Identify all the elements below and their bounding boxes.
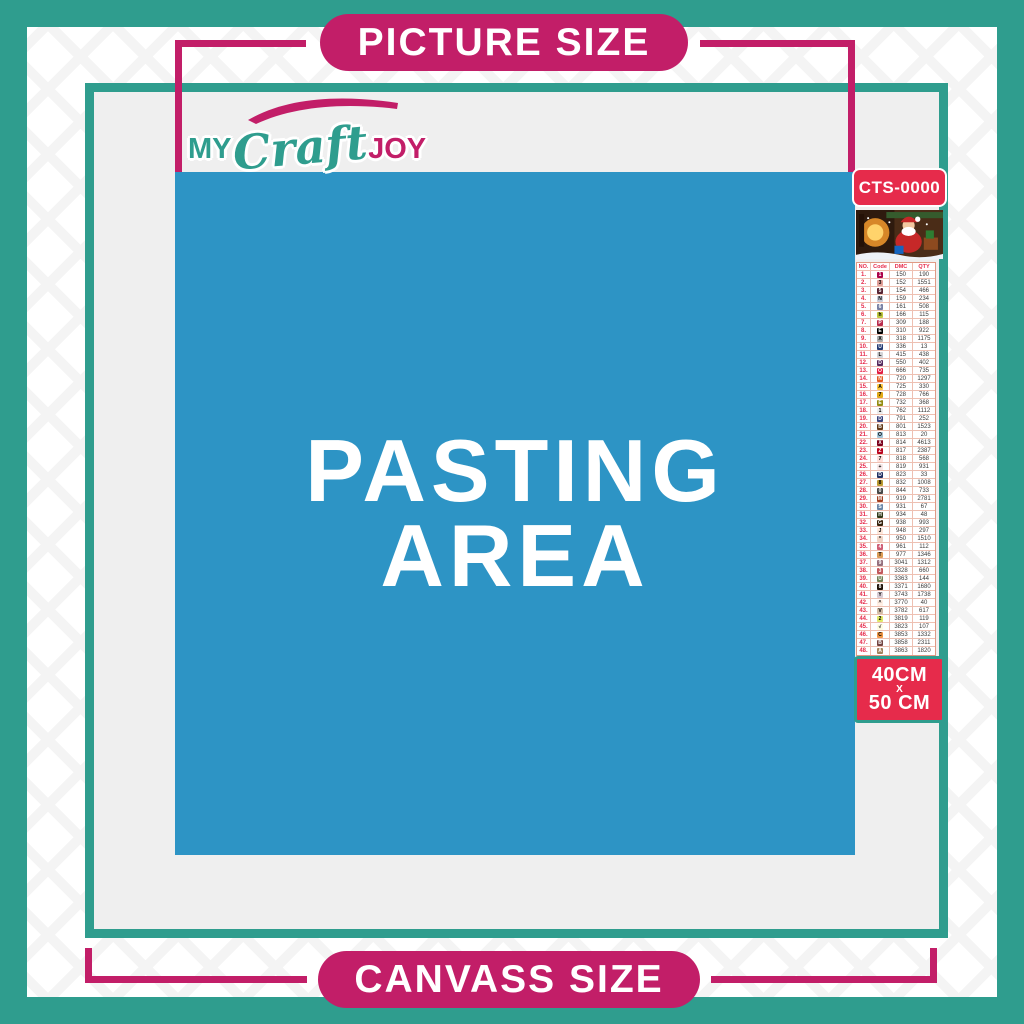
legend-dmc-cell: 938 (890, 519, 913, 526)
legend-dmc-cell: 3863 (890, 647, 913, 655)
table-row: 39.U3363144 (857, 575, 935, 583)
table-row: 21.O81320 (857, 431, 935, 439)
legend-dmc-cell: 3328 (890, 567, 913, 574)
table-row: 26.D82333 (857, 471, 935, 479)
legend-no-cell: 17. (857, 399, 871, 406)
legend-no-cell: 22. (857, 439, 871, 446)
table-row: 34.*9501510 (857, 535, 935, 543)
legend-no-cell: 36. (857, 551, 871, 558)
table-row: 31.H93448 (857, 511, 935, 519)
canvass-size-banner: CANVASS SIZE (318, 951, 700, 1008)
legend-no-cell: 40. (857, 583, 871, 590)
legend-code-cell: Y (871, 591, 890, 598)
legend-code-cell: 0 (871, 487, 890, 494)
table-row: 42.^377040 (857, 599, 935, 607)
table-row: 45.√3823107 (857, 623, 935, 631)
legend-qty-cell: 660 (913, 567, 935, 574)
legend-no-cell: 32. (857, 519, 871, 526)
table-row: 14.N7201297 (857, 375, 935, 383)
color-swatch: U (877, 576, 883, 582)
legend-dmc-cell: 159 (890, 295, 913, 302)
pasting-area-line2: AREA (380, 514, 649, 598)
table-row: 28.0844733 (857, 487, 935, 495)
color-swatch: 1 (877, 272, 883, 278)
legend-no-cell: 45. (857, 623, 871, 630)
table-row: 1.1150190 (857, 271, 935, 279)
legend-no-cell: 2. (857, 279, 871, 286)
legend-code-cell: 7 (871, 455, 890, 462)
legend-no-cell: 12. (857, 359, 871, 366)
color-swatch: C (877, 632, 883, 638)
legend-dmc-cell: 3363 (890, 575, 913, 582)
legend-code-cell: X (871, 335, 890, 342)
legend-no-cell: 18. (857, 407, 871, 414)
legend-code-cell: L (871, 351, 890, 358)
legend-code-cell: U (871, 343, 890, 350)
legend-qty-cell: 931 (913, 463, 935, 470)
top-bracket-line-left (175, 40, 306, 47)
legend-dmc-cell: 309 (890, 319, 913, 326)
legend-qty-cell: 922 (913, 327, 935, 334)
table-row: 43.V3782617 (857, 607, 935, 615)
legend-qty-cell: 20 (913, 431, 935, 438)
legend-no-cell: 37. (857, 559, 871, 566)
table-row: 25.+819931 (857, 463, 935, 471)
picture-size-label: PICTURE SIZE (358, 21, 651, 65)
legend-no-cell: 11. (857, 351, 871, 358)
color-swatch: Y (877, 592, 883, 598)
legend-no-cell: 20. (857, 423, 871, 430)
legend-no-cell: 33. (857, 527, 871, 534)
legend-no-cell: 14. (857, 375, 871, 382)
legend-qty-cell: 2387 (913, 447, 935, 454)
top-bracket-stub-left (175, 40, 182, 172)
table-row: 12.D550402 (857, 359, 935, 367)
color-swatch: Z (877, 448, 883, 454)
color-swatch: 8 (877, 480, 883, 486)
table-row: 48.A38631820 (857, 647, 935, 655)
color-swatch: L (877, 352, 883, 358)
legend-dmc-cell: 823 (890, 471, 913, 478)
legend-code-cell: B (871, 639, 890, 646)
legend-code-cell: E (871, 327, 890, 334)
legend-dmc-cell: 832 (890, 479, 913, 486)
color-swatch: D (877, 472, 883, 478)
legend-code-cell: D (871, 359, 890, 366)
color-swatch: 6 (877, 304, 883, 310)
logo-text-craft: Craft (231, 122, 369, 176)
legend-no-cell: 5. (857, 303, 871, 310)
brand-logo: MY Craft JOY (188, 98, 413, 172)
color-swatch: 9 (877, 560, 883, 566)
legend-dmc-cell: 318 (890, 335, 913, 342)
size-width: 40CM (872, 666, 927, 685)
color-swatch: T (877, 552, 883, 558)
color-swatch: 5 (877, 288, 883, 294)
legend-qty-cell: 252 (913, 415, 935, 422)
legend-dmc-cell: 3858 (890, 639, 913, 646)
legend-qty-cell: 13 (913, 343, 935, 350)
canvas-size-badge: 40CM X 50 CM (854, 656, 945, 723)
legend-code-cell: B (871, 423, 890, 430)
legend-code-cell: * (871, 535, 890, 542)
legend-dmc-cell: 336 (890, 343, 913, 350)
color-swatch: 8 (877, 584, 883, 590)
legend-dmc-cell: 817 (890, 447, 913, 454)
legend-qty-cell: 438 (913, 351, 935, 358)
legend-no-cell: 6. (857, 311, 871, 318)
color-swatch: E (877, 400, 883, 406)
color-swatch: B (877, 640, 883, 646)
color-swatch: P (877, 320, 883, 326)
legend-no-cell: 44. (857, 615, 871, 622)
legend-qty-cell: 1523 (913, 423, 935, 430)
legend-no-cell: 15. (857, 383, 871, 390)
logo-swoosh-icon (246, 94, 406, 124)
legend-no-cell: 29. (857, 495, 871, 502)
table-row: 36.T9771346 (857, 551, 935, 559)
legend-qty-cell: 568 (913, 455, 935, 462)
legend-dmc-cell: 3823 (890, 623, 913, 630)
legend-dmc-cell: 818 (890, 455, 913, 462)
legend-no-cell: 39. (857, 575, 871, 582)
table-row: 23.Z8172387 (857, 447, 935, 455)
legend-no-cell: 3. (857, 287, 871, 294)
color-swatch: H (877, 512, 883, 518)
legend-code-cell: X (871, 439, 890, 446)
table-row: 37.930411312 (857, 559, 935, 567)
table-row: 47.B38582311 (857, 639, 935, 647)
table-row: 17.E732368 (857, 399, 935, 407)
table-row: 32.G938993 (857, 519, 935, 527)
table-row: 44.23819119 (857, 615, 935, 623)
legend-header-cell: Code (871, 263, 890, 270)
legend-qty-cell: 1112 (913, 407, 935, 414)
legend-code-cell: 1 (871, 271, 890, 278)
table-row: 13.O666735 (857, 367, 935, 375)
legend-code-cell: √ (871, 623, 890, 630)
legend-dmc-cell: 152 (890, 279, 913, 286)
color-swatch: + (877, 464, 883, 470)
legend-dmc-cell: 720 (890, 375, 913, 382)
table-row: 5.6161508 (857, 303, 935, 311)
color-swatch: 4 (877, 544, 883, 550)
legend-code-cell: D (871, 471, 890, 478)
legend-code-cell: N (871, 375, 890, 382)
legend-dmc-cell: 3853 (890, 631, 913, 638)
table-row: 29.M9192781 (857, 495, 935, 503)
table-row: 3.5154466 (857, 287, 935, 295)
legend-qty-cell: 466 (913, 287, 935, 294)
legend-qty-cell: 1008 (913, 479, 935, 486)
color-swatch: O (877, 432, 883, 438)
table-row: 7.P309188 (857, 319, 935, 327)
legend-dmc-cell: 732 (890, 399, 913, 406)
color-swatch: 7 (877, 392, 883, 398)
legend-code-cell: M (871, 495, 890, 502)
legend-code-cell: 1 (871, 407, 890, 414)
legend-code-cell: A (871, 383, 890, 390)
legend-qty-cell: 234 (913, 295, 935, 302)
legend-no-cell: 24. (857, 455, 871, 462)
legend-qty-cell: 330 (913, 383, 935, 390)
legend-no-cell: 42. (857, 599, 871, 606)
color-swatch: ^ (877, 600, 883, 606)
legend-qty-cell: 2781 (913, 495, 935, 502)
legend-header-row: NO.CodeDMCQTY (857, 263, 935, 271)
legend-header-cell: NO. (857, 263, 871, 270)
legend-code-cell: J (871, 527, 890, 534)
legend-qty-cell: 188 (913, 319, 935, 326)
bottom-bracket-stub-right (930, 948, 937, 983)
legend-no-cell: 27. (857, 479, 871, 486)
legend-code-cell: 8 (871, 583, 890, 590)
legend-dmc-cell: 728 (890, 391, 913, 398)
legend-code-cell: H (871, 511, 890, 518)
legend-no-cell: 31. (857, 511, 871, 518)
color-swatch: S (877, 504, 883, 510)
legend-dmc-cell: 3819 (890, 615, 913, 622)
legend-no-cell: 19. (857, 415, 871, 422)
color-swatch: D (877, 360, 883, 366)
legend-code-cell: + (871, 463, 890, 470)
legend-no-cell: 8. (857, 327, 871, 334)
legend-code-cell: 2 (871, 615, 890, 622)
legend-qty-cell: 1175 (913, 335, 935, 342)
color-swatch: V (877, 608, 883, 614)
legend-dmc-cell: 725 (890, 383, 913, 390)
legend-code-cell: P (871, 319, 890, 326)
legend-qty-cell: 1551 (913, 279, 935, 286)
color-swatch: U (877, 344, 883, 350)
legend-no-cell: 30. (857, 503, 871, 510)
legend-code-cell: 3 (871, 567, 890, 574)
legend-dmc-cell: 801 (890, 423, 913, 430)
package-layout: PASTING AREA MY Craft JOY CTS-0000 (0, 0, 1024, 1024)
legend-qty-cell: 4613 (913, 439, 935, 446)
logo-text-my: MY (188, 135, 232, 172)
picture-size-banner: PICTURE SIZE (320, 14, 688, 71)
legend-header-cell: DMC (890, 263, 913, 270)
table-row: 4.N159234 (857, 295, 935, 303)
legend-code-cell: 9 (871, 559, 890, 566)
legend-code-cell: S (871, 503, 890, 510)
legend-qty-cell: 402 (913, 359, 935, 366)
legend-qty-cell: 993 (913, 519, 935, 526)
table-row: 30.S93167 (857, 503, 935, 511)
legend-code-cell: 4 (871, 543, 890, 550)
legend-no-cell: 1. (857, 271, 871, 278)
legend-no-cell: 48. (857, 647, 871, 655)
bottom-bracket-stub-left (85, 948, 92, 983)
canvass-size-label: CANVASS SIZE (354, 958, 663, 1002)
legend-dmc-cell: 950 (890, 535, 913, 542)
legend-qty-cell: 297 (913, 527, 935, 534)
legend-table: NO.CodeDMCQTY1.11501902.315215513.515446… (856, 262, 936, 656)
color-swatch: X (877, 440, 883, 446)
legend-code-cell: O (871, 431, 890, 438)
legend-dmc-cell: 931 (890, 503, 913, 510)
color-swatch: X (877, 336, 883, 342)
product-code-text: CTS-0000 (859, 178, 940, 198)
legend-qty-cell: 119 (913, 615, 935, 622)
legend-qty-cell: 107 (913, 623, 935, 630)
legend-dmc-cell: 919 (890, 495, 913, 502)
legend-qty-cell: 40 (913, 599, 935, 606)
legend-code-cell: O (871, 367, 890, 374)
logo-text-joy: JOY (368, 135, 426, 172)
legend-dmc-cell: 550 (890, 359, 913, 366)
legend-code-cell: T (871, 551, 890, 558)
size-height: 50 CM (869, 694, 930, 713)
product-thumbnail (856, 210, 943, 259)
color-swatch: h (877, 312, 883, 318)
legend-code-cell: C (871, 631, 890, 638)
legend-dmc-cell: 762 (890, 407, 913, 414)
color-swatch: A (877, 384, 883, 390)
legend-dmc-cell: 161 (890, 303, 913, 310)
table-row: 20.B8011523 (857, 423, 935, 431)
pasting-area: PASTING AREA (175, 172, 855, 855)
color-swatch: 1 (877, 408, 883, 414)
top-bracket-line-right (700, 40, 855, 47)
legend-dmc-cell: 948 (890, 527, 913, 534)
legend-qty-cell: 508 (913, 303, 935, 310)
table-row: 19.D791252 (857, 415, 935, 423)
legend-no-cell: 10. (857, 343, 871, 350)
legend-qty-cell: 733 (913, 487, 935, 494)
legend-code-cell: V (871, 607, 890, 614)
legend-qty-cell: 1346 (913, 551, 935, 558)
table-row: 24.7818568 (857, 455, 935, 463)
table-row: 22.X8144613 (857, 439, 935, 447)
legend-dmc-cell: 166 (890, 311, 913, 318)
legend-qty-cell: 48 (913, 511, 935, 518)
legend-qty-cell: 368 (913, 399, 935, 406)
legend-code-cell: A (871, 647, 890, 655)
top-bracket-stub-right (848, 40, 855, 172)
legend-code-cell: 8 (871, 479, 890, 486)
legend-dmc-cell: 3743 (890, 591, 913, 598)
legend-no-cell: 28. (857, 487, 871, 494)
color-swatch: D (877, 416, 883, 422)
legend-dmc-cell: 977 (890, 551, 913, 558)
table-row: 10.U33613 (857, 343, 935, 351)
table-row: 27.88321008 (857, 479, 935, 487)
legend-no-cell: 9. (857, 335, 871, 342)
color-swatch: N (877, 296, 883, 302)
color-swatch: A (877, 648, 883, 654)
table-row: 40.833711680 (857, 583, 935, 591)
legend-no-cell: 46. (857, 631, 871, 638)
legend-qty-cell: 1820 (913, 647, 935, 655)
legend-no-cell: 16. (857, 391, 871, 398)
legend-qty-cell: 1738 (913, 591, 935, 598)
legend-code-cell: E (871, 399, 890, 406)
color-swatch: 3 (877, 280, 883, 286)
table-row: 16.7728766 (857, 391, 935, 399)
legend-code-cell: Z (871, 447, 890, 454)
legend-no-cell: 21. (857, 431, 871, 438)
legend-code-cell: N (871, 295, 890, 302)
color-swatch: 2 (877, 616, 883, 622)
table-row: 46.C38531332 (857, 631, 935, 639)
table-row: 2.31521551 (857, 279, 935, 287)
legend-code-cell: 3 (871, 279, 890, 286)
legend-dmc-cell: 310 (890, 327, 913, 334)
legend-dmc-cell: 415 (890, 351, 913, 358)
table-row: 6.h166115 (857, 311, 935, 319)
legend-code-cell: 6 (871, 303, 890, 310)
legend-no-cell: 47. (857, 639, 871, 646)
bottom-bracket-line-right (711, 976, 937, 983)
legend-no-cell: 43. (857, 607, 871, 614)
legend-no-cell: 38. (857, 567, 871, 574)
table-row: 33.J948297 (857, 527, 935, 535)
legend-no-cell: 34. (857, 535, 871, 542)
legend-qty-cell: 1312 (913, 559, 935, 566)
legend-dmc-cell: 814 (890, 439, 913, 446)
color-swatch: N (877, 376, 883, 382)
legend-qty-cell: 766 (913, 391, 935, 398)
color-swatch: E (877, 328, 883, 334)
color-swatch: * (877, 536, 883, 542)
legend-qty-cell: 1297 (913, 375, 935, 382)
table-row: 15.A725330 (857, 383, 935, 391)
color-swatch: M (877, 496, 883, 502)
legend-dmc-cell: 813 (890, 431, 913, 438)
legend-dmc-cell: 791 (890, 415, 913, 422)
legend-header-cell: QTY (913, 263, 935, 270)
legend-no-cell: 41. (857, 591, 871, 598)
legend-dmc-cell: 3041 (890, 559, 913, 566)
table-row: 9.X3181175 (857, 335, 935, 343)
color-swatch: 3 (877, 568, 883, 574)
legend-qty-cell: 115 (913, 311, 935, 318)
legend-dmc-cell: 934 (890, 511, 913, 518)
legend-no-cell: 26. (857, 471, 871, 478)
legend-qty-cell: 67 (913, 503, 935, 510)
color-swatch: O (877, 368, 883, 374)
table-row: 8.E310922 (857, 327, 935, 335)
legend-code-cell: G (871, 519, 890, 526)
table-row: 11.L415438 (857, 351, 935, 359)
legend-dmc-cell: 3371 (890, 583, 913, 590)
legend-dmc-cell: 3782 (890, 607, 913, 614)
legend-code-cell: ^ (871, 599, 890, 606)
table-row: 38.33328660 (857, 567, 935, 575)
legend-no-cell: 13. (857, 367, 871, 374)
legend-code-cell: h (871, 311, 890, 318)
color-swatch: 7 (877, 456, 883, 462)
color-swatch: J (877, 528, 883, 534)
legend-dmc-cell: 844 (890, 487, 913, 494)
color-swatch: G (877, 520, 883, 526)
legend-dmc-cell: 961 (890, 543, 913, 550)
legend-no-cell: 25. (857, 463, 871, 470)
bottom-bracket-line-left (85, 976, 307, 983)
legend-qty-cell: 33 (913, 471, 935, 478)
legend-qty-cell: 2311 (913, 639, 935, 646)
pasting-area-line1: PASTING (305, 429, 725, 513)
color-swatch: √ (877, 624, 883, 630)
color-swatch: B (877, 424, 883, 430)
legend-qty-cell: 1680 (913, 583, 935, 590)
legend-qty-cell: 112 (913, 543, 935, 550)
legend-dmc-cell: 154 (890, 287, 913, 294)
legend-qty-cell: 735 (913, 367, 935, 374)
table-row: 35.4961112 (857, 543, 935, 551)
